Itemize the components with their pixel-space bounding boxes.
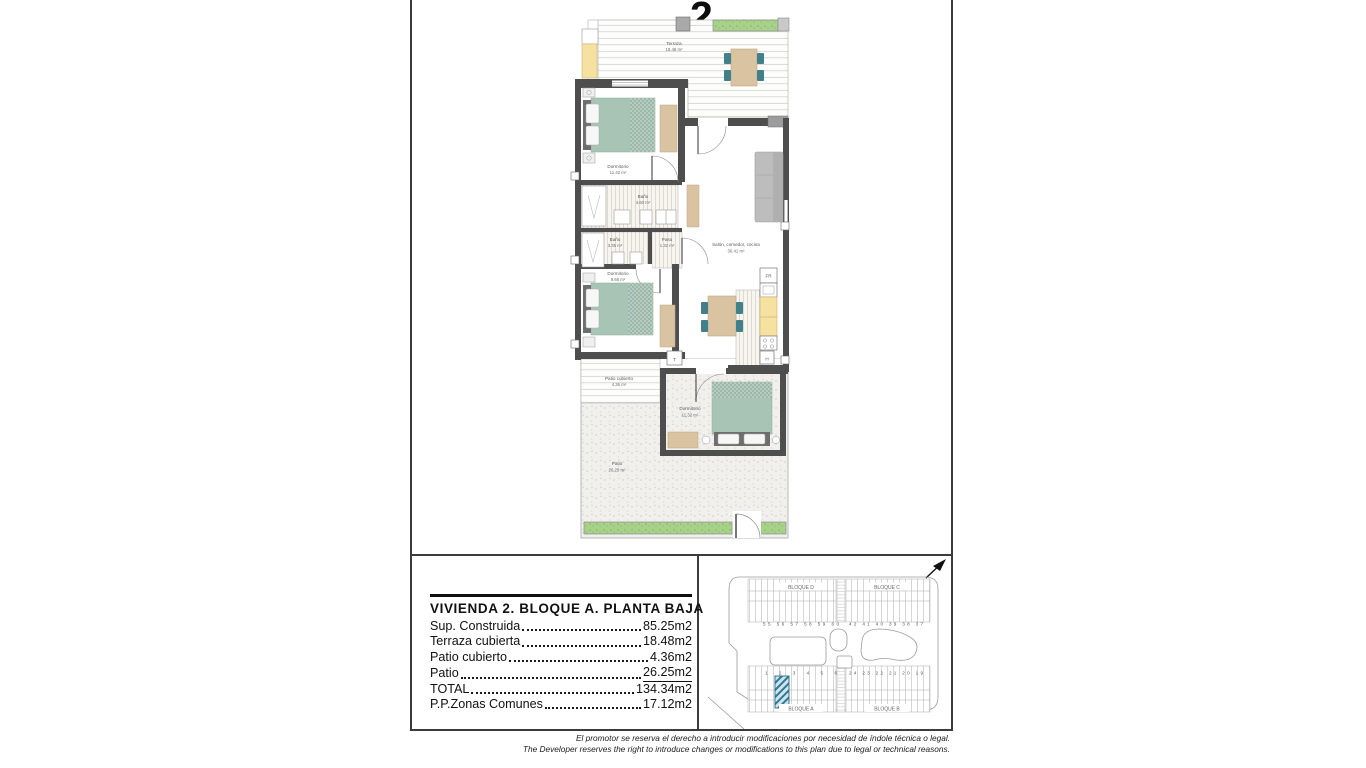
living-room: Salón, comedor, cocina 30.41 m² FR H [667,152,783,365]
row-value: 18.48m2 [643,634,692,649]
dot-leader [509,660,648,662]
title-rule [430,594,692,597]
floorplan-drawing: Terraza 18.48 m² Patio cubierto 4.36 m² … [555,0,805,554]
row-label: TOTAL [430,682,469,697]
room-area-salon: 30.41 m² [728,249,746,254]
patio-planter-left [584,522,732,534]
terrace-planter [713,20,778,31]
dot-leader [461,677,641,679]
frame-right-border [951,0,953,731]
summary-row-terraza-cubierta: Terraza cubierta18.48m2 [430,634,692,649]
room-area-patio-cubierto: 4.36 m² [612,382,627,387]
summary-row-patio: Patio26.25m2 [430,665,692,681]
room-label-patio-cubierto: Patio cubierto [605,376,634,381]
bloque-b-label: BLOQUE B [874,707,900,713]
summary-row-patio-cubierto: Patio cubierto4.36m2 [430,650,692,665]
row-label: P.P.Zonas Comunes [430,697,543,712]
bedroom-2: Dormitorio 9.68 m² [583,271,675,347]
north-arrow-icon [926,559,946,578]
summary-row-pp-zonas-comunes: P.P.Zonas Comunes17.12m2 [430,697,692,712]
highlighted-unit [775,676,789,708]
room-label-patio: Patio [612,461,623,466]
summary-title: VIVIENDA 2. BLOQUE A. PLANTA BAJA [430,601,690,616]
disclaimer-es: El promotor se reserva el derecho a intr… [410,733,950,744]
dot-leader [471,692,634,694]
dot-leader [522,629,641,631]
room-label-dormitorio1: Dormitorio [607,164,629,169]
room-area-dormitorio3: 11.32 m² [682,413,699,418]
row-label: Patio [430,666,459,681]
kitchen-units: FR H [760,268,777,364]
room-label-paso: Paso [662,237,673,242]
summary-row-sup-construida: Sup. Construida85.25m2 [430,619,692,634]
bloque-a-label: BLOQUE A [788,707,814,713]
tank-marker: T [673,357,676,362]
patio-planter-right [760,522,786,534]
row-value: 17.12m2 [643,697,692,712]
area-summary-panel: VIVIENDA 2. BLOQUE A. PLANTA BAJA Sup. C… [410,554,698,730]
room-label-dormitorio2: Dormitorio [607,271,629,276]
room-area-dormitorio1: 11.42 m² [610,170,627,175]
room-area-bano1: 4.60 m² [636,200,651,205]
room-label-bano2: Baño [610,237,621,242]
plan-page: 2 [0,0,1366,768]
room-area-terraza: 18.48 m² [666,47,684,52]
summary-row-total: TOTAL134.34m2 [430,682,692,697]
room-area-dormitorio2: 9.68 m² [611,277,626,282]
site-pools [770,629,917,668]
sofa [755,152,783,222]
row-value: 4.36m2 [650,650,692,665]
room-label-dormitorio3: Dormitorio [679,406,701,411]
room-label-bano1: Baño [638,194,649,199]
row-label: Terraza cubierta [430,634,520,649]
bloque-c-label: BLOQUE C [874,585,900,591]
wardrobe [660,105,677,152]
room-area-bano2: 3.35 m² [608,243,623,248]
dot-leader [545,707,641,709]
row-label: Patio cubierto [430,650,507,665]
row-value: 85.25m2 [643,619,692,634]
siteplan-drawing: BLOQUE D BLOQUE C BLOQUE A BLOQUE B 55 5… [699,555,951,729]
disclaimer-en: The Developer reserves the right to intr… [410,744,950,755]
room-label-salon: Salón, comedor, cocina [712,242,760,247]
room-area-patio: 26.25 m² [609,468,627,473]
bedroom-1: Dormitorio 11.42 m² [583,88,677,175]
bloque-d-label: BLOQUE D [788,585,814,591]
row-value: 134.34m2 [636,682,692,697]
disclaimer: El promotor se reserva el derecho a intr… [410,733,950,754]
patio-cubierto-deck [581,359,660,403]
row-label: Sup. Construida [430,619,520,634]
dot-leader [522,645,641,647]
room-area-paso: 1.32 m² [660,243,675,248]
row-value: 26.25m2 [643,665,692,681]
room-label-terraza: Terraza [666,41,682,46]
heater-marker: H [765,357,768,362]
fridge-marker: FR [765,274,772,279]
